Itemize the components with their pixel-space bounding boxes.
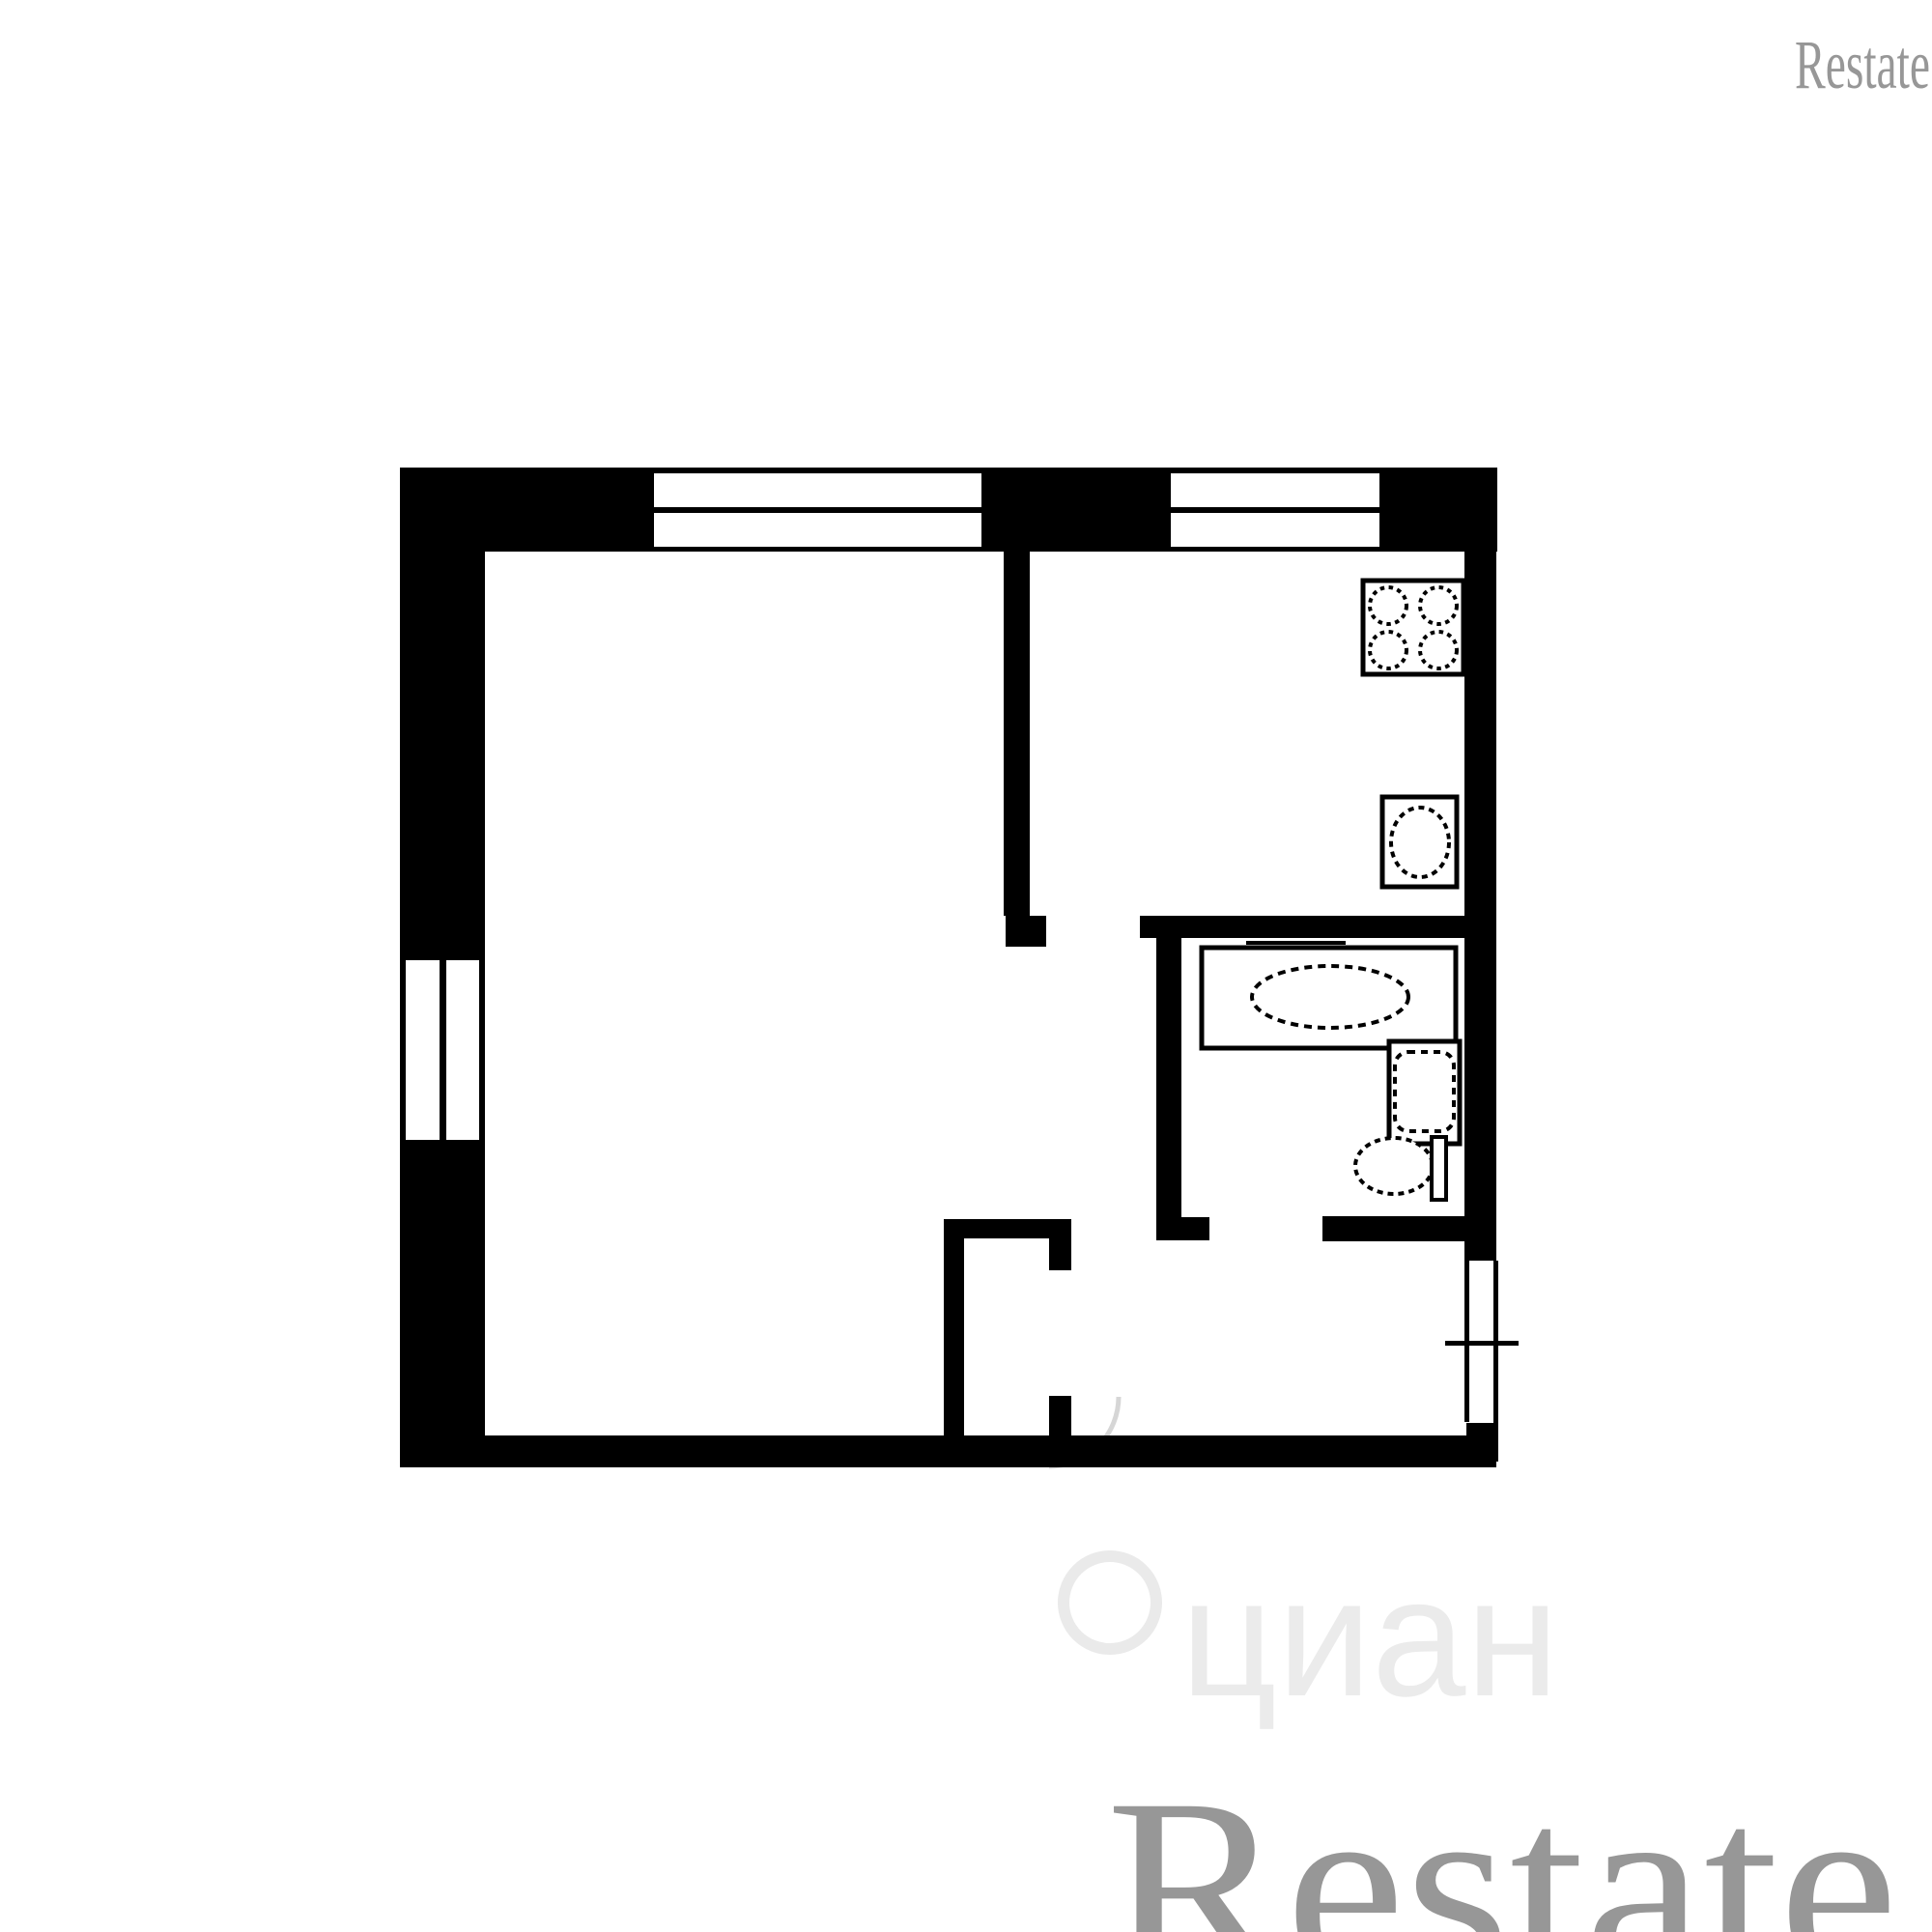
svg-text:циан: циан	[1180, 1544, 1559, 1732]
svg-text:Restate: Restate	[1795, 26, 1930, 103]
svg-text:Restate: Restate	[1106, 1747, 1898, 1932]
